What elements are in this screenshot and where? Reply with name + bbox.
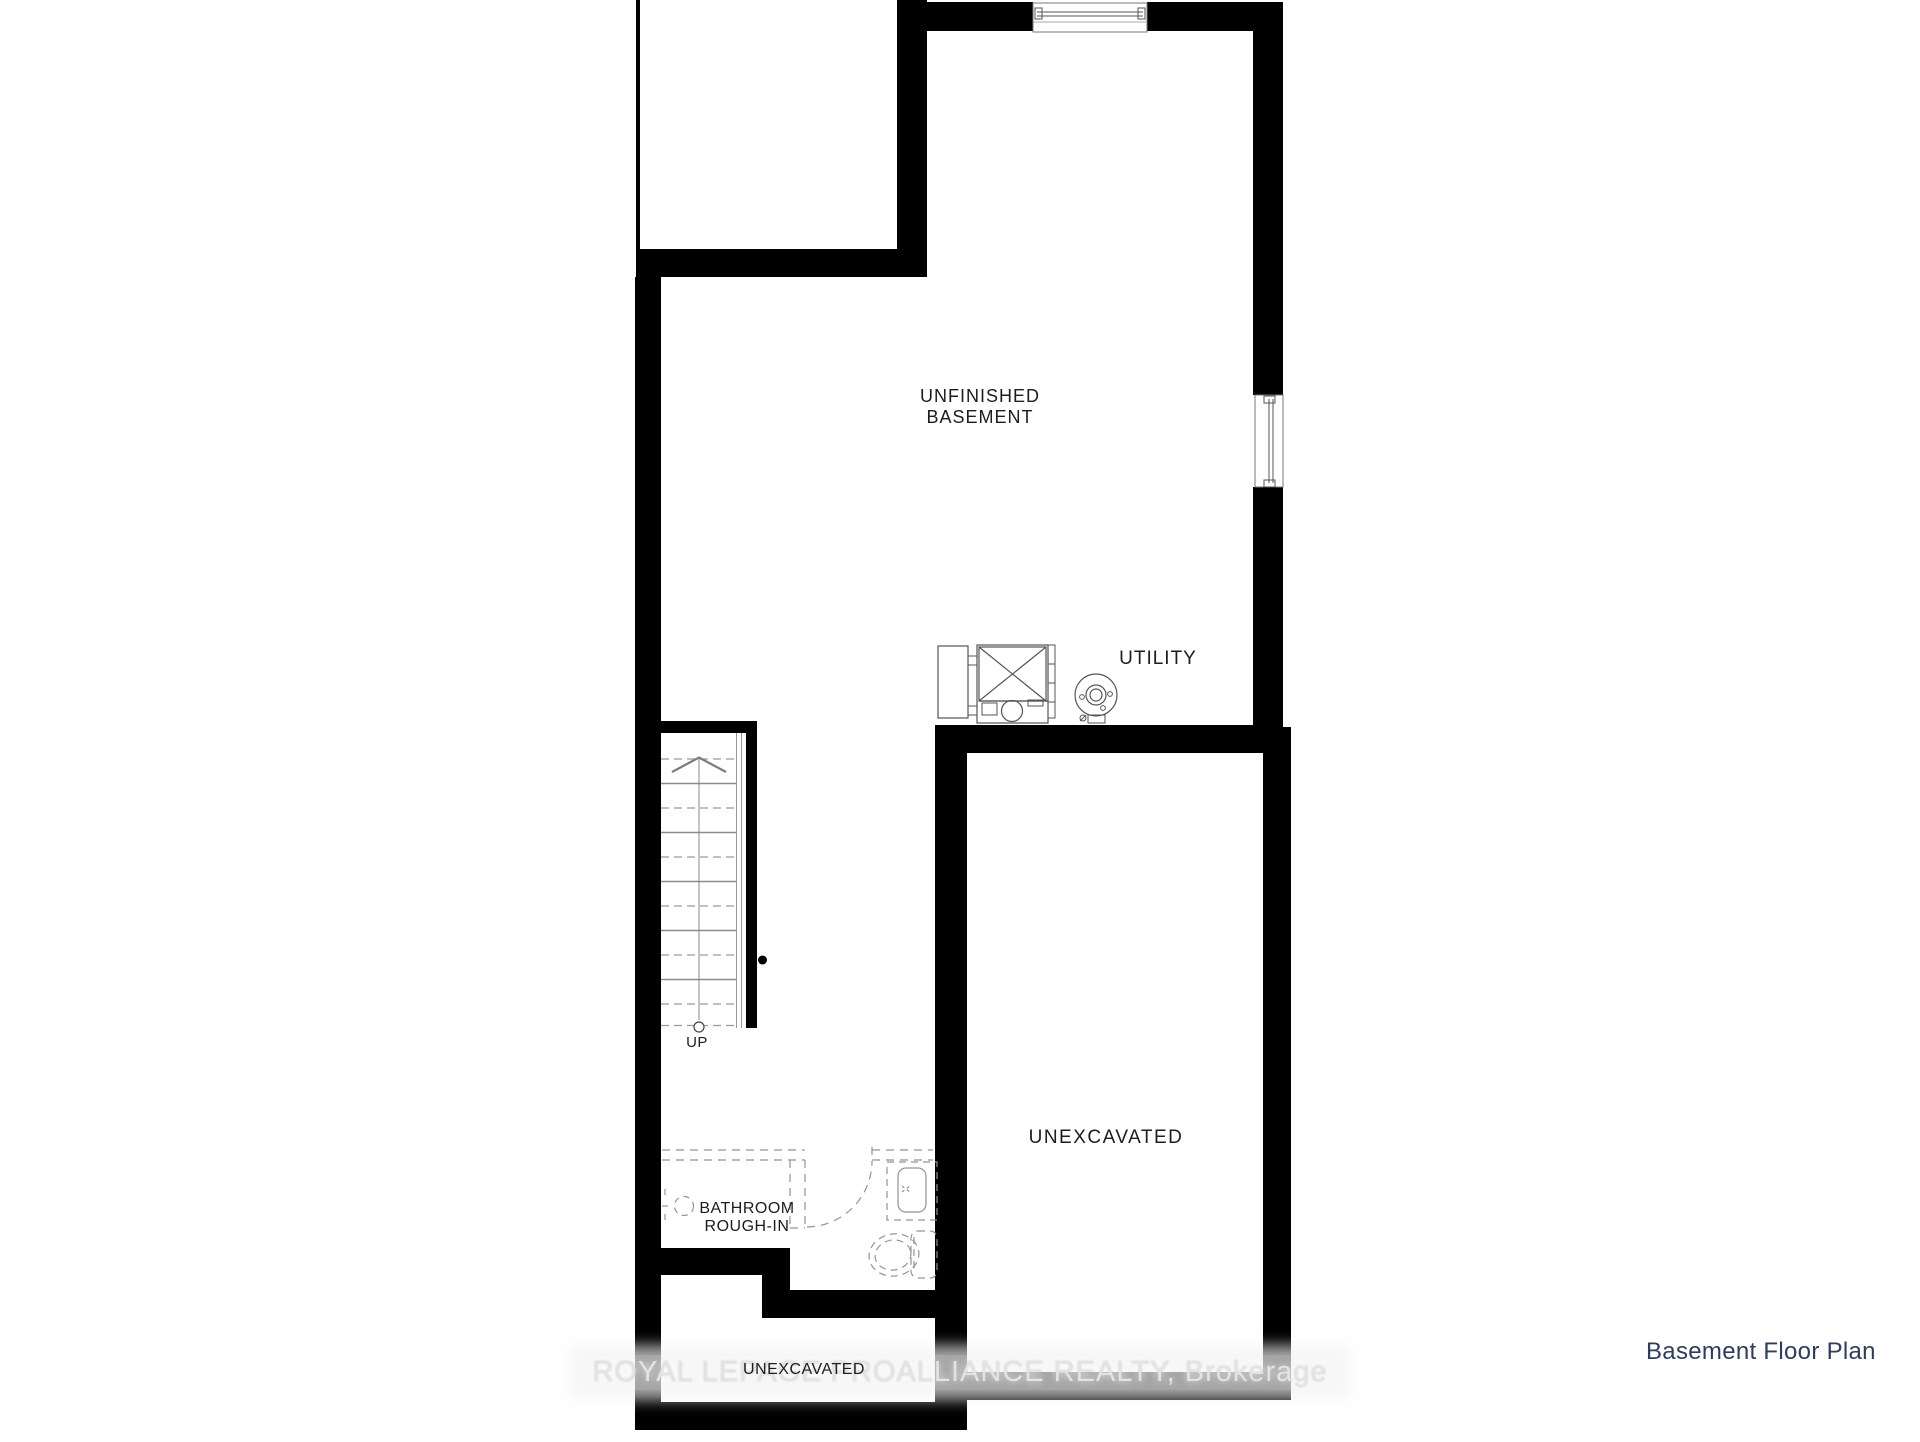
water-heater-icon (1075, 674, 1117, 723)
window-icon-right (1255, 395, 1283, 487)
label-bathroom-line2: ROUGH-IN (672, 1218, 822, 1236)
label-unfinished-basement-line2: BASEMENT (880, 407, 1080, 428)
door-hinge-dot (758, 956, 767, 965)
window-icon-top (1033, 3, 1147, 32)
label-unfinished-basement-line1: UNFINISHED (880, 386, 1080, 407)
label-bathroom-line1: BATHROOM (672, 1200, 822, 1218)
furnace-icon (938, 645, 1055, 723)
label-unexcavated-main: UNEXCAVATED (1006, 1127, 1206, 1149)
stairs (661, 733, 742, 1032)
vanity-sink-icon (887, 1162, 937, 1220)
plan-linework (0, 0, 1920, 1442)
label-bathroom-rough-in: BATHROOM ROUGH-IN (672, 1200, 822, 1237)
page-title: Basement Floor Plan (1646, 1338, 1876, 1366)
basement-floor-plan: UNFINISHED BASEMENT UTILITY UP BATHROOM … (0, 0, 1920, 1442)
toilet-icon (866, 1230, 937, 1280)
label-unfinished-basement: UNFINISHED BASEMENT (880, 386, 1080, 427)
label-utility: UTILITY (1108, 648, 1208, 670)
label-up: UP (667, 1034, 727, 1051)
label-unexcavated-lower: UNEXCAVATED (719, 1361, 889, 1379)
